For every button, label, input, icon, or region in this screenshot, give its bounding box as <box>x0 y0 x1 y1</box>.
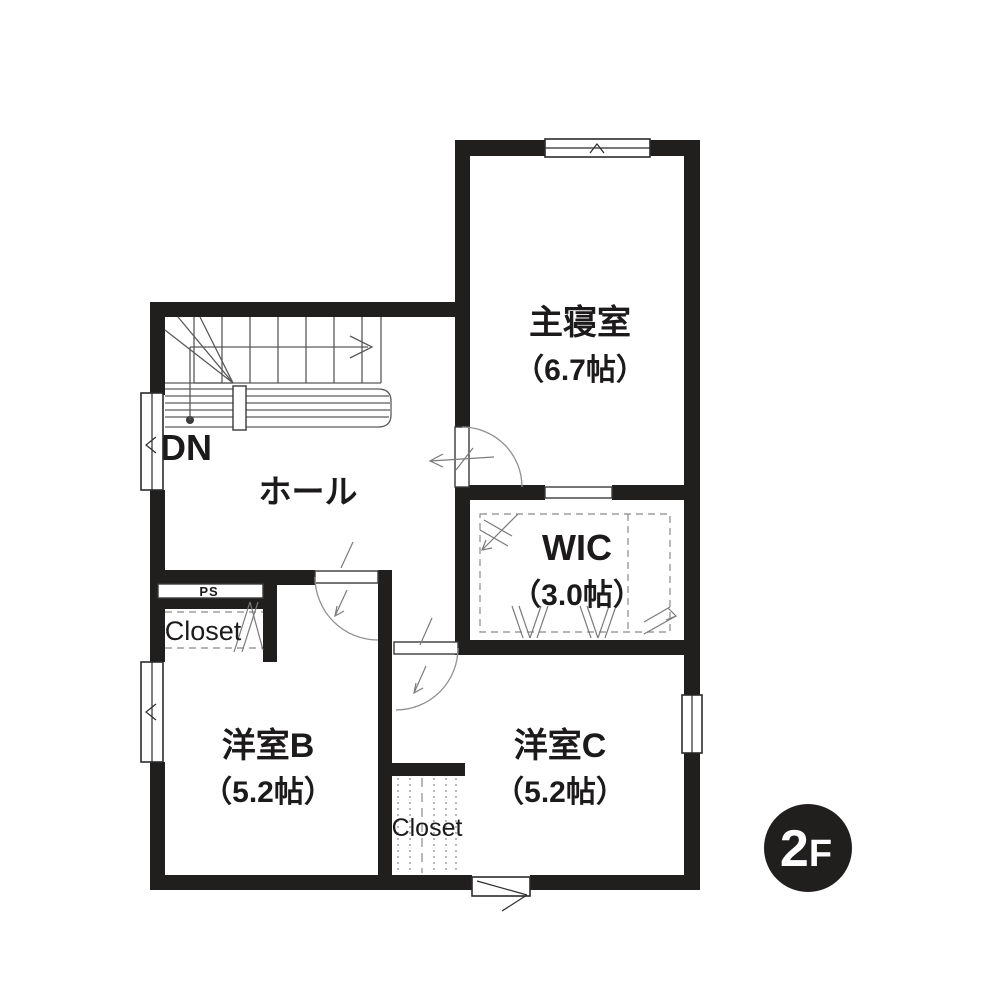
wall-segment <box>150 302 165 395</box>
room-size: （3.0帖） <box>511 578 643 612</box>
room-name: WIC <box>542 527 612 568</box>
room-size: （6.7帖） <box>514 353 646 387</box>
closet-bottom-label: Closet <box>392 814 463 842</box>
ps-label: PS <box>199 584 218 599</box>
wall-segment <box>684 140 700 695</box>
door-swing-arrow-icon <box>414 683 423 693</box>
wall-segment <box>530 875 700 890</box>
wall-segment <box>263 570 277 662</box>
floor-plan-canvas: DN <box>0 0 1000 1000</box>
window-left-upper <box>141 393 163 490</box>
wall-segment <box>158 598 263 609</box>
wall-segment <box>455 140 470 427</box>
wall-segment <box>392 763 465 776</box>
wall-segment <box>150 875 472 890</box>
door-master-bedroom <box>430 427 522 487</box>
room-size: （5.2帖） <box>202 775 334 809</box>
door-western-room-c <box>394 618 458 710</box>
window-right <box>682 695 702 753</box>
stairs-dn-label: DN <box>160 427 212 468</box>
wall-segment <box>684 753 700 890</box>
room-name: 主寝室 <box>529 303 631 342</box>
wall-segment <box>150 302 470 317</box>
room-name: 洋室B <box>222 726 315 765</box>
window-bottom <box>472 877 530 911</box>
room-label-western-room-b: 洋室B （5.2帖） <box>202 726 334 809</box>
wall-segment <box>612 485 700 500</box>
wic-doorway <box>545 487 612 498</box>
staircase: DN <box>160 317 391 468</box>
floor-badge: 2F <box>764 804 852 892</box>
room-label-master-bedroom: 主寝室 （6.7帖） <box>514 303 646 387</box>
door-western-room-b <box>315 542 378 640</box>
wall-segment <box>378 570 392 890</box>
window-left-lower <box>141 662 163 762</box>
room-label-wic: WIC （3.0帖） <box>511 527 643 612</box>
hanger-arrow-icon <box>666 608 676 620</box>
wall-segment <box>455 640 700 655</box>
room-size: （5.2帖） <box>494 775 626 809</box>
room-name: ホール <box>259 473 358 510</box>
room-label-hall: ホール <box>259 473 358 510</box>
room-name: 洋室C <box>514 726 607 765</box>
closet-left-label: Closet <box>165 616 242 646</box>
floor-plan-page: DN <box>0 0 1000 1000</box>
wall-segment <box>150 570 315 585</box>
stair-newel <box>233 386 246 430</box>
room-label-western-room-c: 洋室C （5.2帖） <box>494 726 626 809</box>
window-bedroom-top <box>545 139 650 157</box>
wall-segment <box>455 485 470 655</box>
wall-segment <box>150 762 165 890</box>
